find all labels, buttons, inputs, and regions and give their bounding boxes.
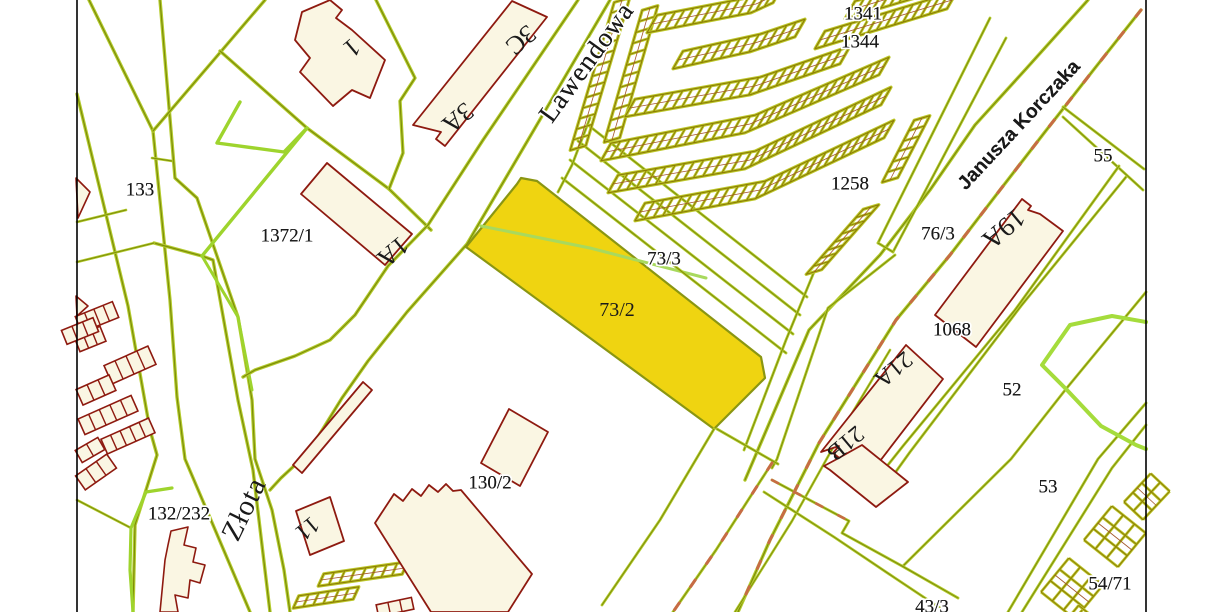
svg-text:73/3: 73/3 bbox=[647, 249, 681, 270]
svg-text:133: 133 bbox=[126, 180, 155, 201]
svg-text:53: 53 bbox=[1039, 477, 1058, 498]
svg-text:1258: 1258 bbox=[831, 174, 869, 195]
svg-text:76/3: 76/3 bbox=[921, 224, 955, 245]
svg-text:54/71: 54/71 bbox=[1088, 574, 1131, 595]
svg-text:130/2: 130/2 bbox=[468, 473, 511, 494]
svg-text:1341: 1341 bbox=[844, 4, 882, 25]
svg-text:1068: 1068 bbox=[933, 320, 971, 341]
svg-text:1344: 1344 bbox=[841, 32, 880, 53]
svg-text:55: 55 bbox=[1094, 146, 1113, 167]
svg-text:132/232: 132/232 bbox=[148, 504, 210, 525]
svg-text:43/3: 43/3 bbox=[915, 597, 949, 612]
svg-text:1372/1: 1372/1 bbox=[261, 226, 314, 247]
svg-text:73/2: 73/2 bbox=[599, 299, 635, 321]
svg-text:52: 52 bbox=[1003, 380, 1022, 401]
